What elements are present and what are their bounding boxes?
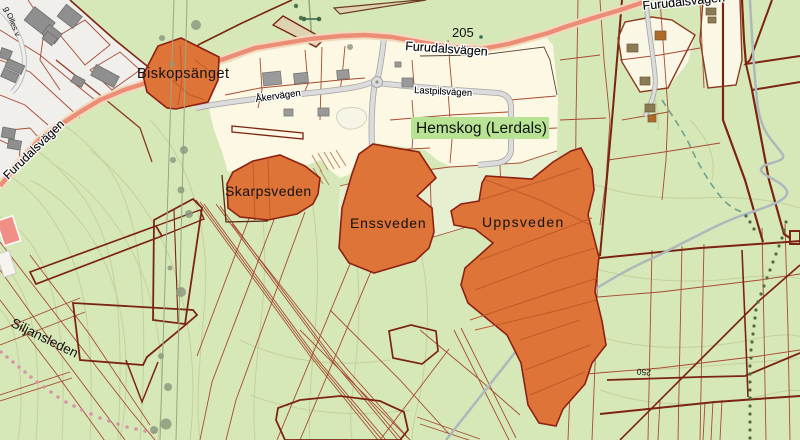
svg-text:Biskopsänget: Biskopsänget	[137, 66, 229, 82]
svg-text:205: 205	[452, 25, 474, 40]
svg-text:Uppsveden: Uppsveden	[482, 214, 565, 230]
svg-text:250: 250	[636, 367, 651, 378]
svg-text:Hemskog (Lerdals): Hemskog (Lerdals)	[416, 120, 547, 137]
svg-text:Skarpsveden: Skarpsveden	[225, 183, 312, 199]
svg-text:Enssveden: Enssveden	[350, 215, 426, 231]
